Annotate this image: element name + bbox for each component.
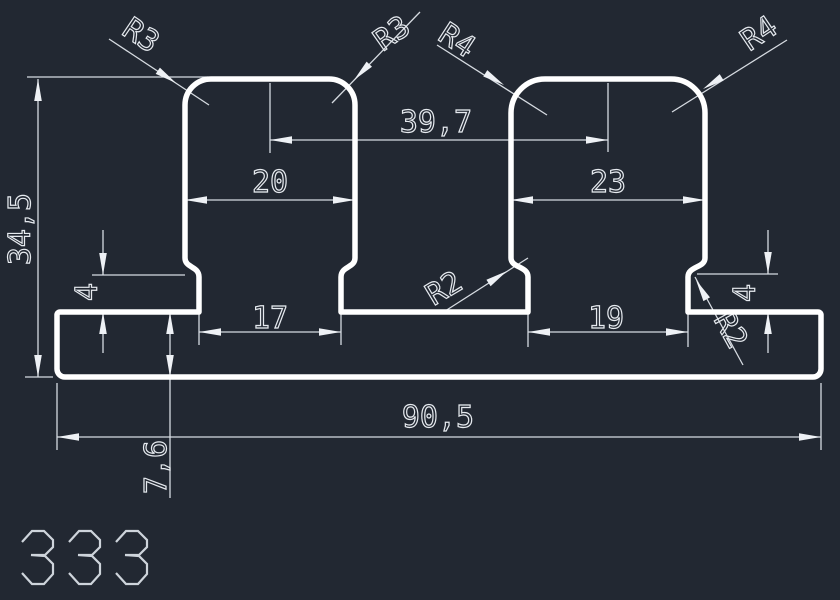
arrowhead bbox=[666, 328, 688, 336]
radius-label-r4-right: R4 bbox=[734, 9, 784, 58]
arrowhead bbox=[528, 328, 550, 336]
dim-base-height: 7,6 bbox=[139, 312, 174, 498]
radius-label-r3-right: R3 bbox=[367, 9, 417, 58]
leader-r2-center: R2 bbox=[420, 258, 528, 313]
part-number bbox=[22, 531, 147, 584]
arrowhead bbox=[99, 312, 107, 334]
arrowhead bbox=[764, 252, 772, 274]
cad-drawing-canvas[interactable]: 34,5 39,7 20 23 17 19 bbox=[0, 0, 840, 600]
digit-3 bbox=[116, 531, 147, 584]
leader-r3-left: R3 bbox=[109, 11, 209, 105]
dim-text-left-neck-width: 17 bbox=[252, 301, 288, 336]
digit-3 bbox=[69, 531, 100, 584]
dim-text-right-neck-width: 19 bbox=[588, 301, 624, 336]
dim-text-total-height: 34,5 bbox=[3, 193, 38, 265]
arrowhead bbox=[333, 196, 355, 204]
dim-text-base-height: 7,6 bbox=[139, 440, 174, 494]
dim-right-tower-width: 23 bbox=[511, 165, 705, 204]
dim-right-neck-width: 19 bbox=[528, 301, 688, 347]
dim-text-right-step: 4 bbox=[728, 284, 763, 302]
radius-label-r4-left: R4 bbox=[432, 16, 481, 65]
dim-text-tower-spacing: 39,7 bbox=[400, 105, 472, 140]
arrowhead bbox=[34, 79, 42, 101]
dim-text-left-step: 4 bbox=[70, 283, 105, 301]
arrowhead bbox=[57, 433, 79, 441]
arrowhead bbox=[34, 355, 42, 377]
arrowhead bbox=[166, 355, 174, 377]
arrowhead bbox=[354, 62, 372, 80]
arrowhead bbox=[696, 280, 710, 301]
arrowhead bbox=[166, 312, 174, 334]
arrowhead bbox=[486, 271, 507, 286]
dim-text-left-tower-width: 20 bbox=[252, 165, 288, 200]
digit-3 bbox=[22, 531, 53, 584]
dim-left-neck-width: 17 bbox=[199, 301, 341, 345]
arrowhead bbox=[511, 196, 533, 204]
dim-text-base-width: 90,5 bbox=[402, 400, 474, 435]
arrowhead bbox=[270, 136, 292, 144]
leader-r4-left: R4 bbox=[432, 16, 547, 115]
technical-drawing: 34,5 39,7 20 23 17 19 bbox=[0, 0, 840, 600]
leader-line bbox=[672, 40, 787, 112]
arrowhead bbox=[764, 312, 772, 334]
leader-r4-right: R4 bbox=[672, 9, 787, 112]
arrowhead bbox=[799, 433, 821, 441]
arrowhead bbox=[99, 253, 107, 275]
dim-text-right-tower-width: 23 bbox=[590, 165, 626, 200]
arrowhead bbox=[586, 136, 608, 144]
arrowhead bbox=[319, 328, 341, 336]
dim-left-tower-width: 20 bbox=[185, 165, 355, 204]
radius-label-r3-left: R3 bbox=[116, 11, 166, 60]
leader-r3-right: R3 bbox=[332, 9, 420, 103]
arrowhead bbox=[199, 328, 221, 336]
arrowhead bbox=[483, 70, 504, 85]
dim-left-step-height: 4 bbox=[70, 230, 185, 353]
radius-label-r2-center: R2 bbox=[420, 264, 469, 313]
arrowhead bbox=[156, 68, 176, 83]
arrowhead bbox=[683, 196, 705, 204]
arrowhead bbox=[185, 196, 207, 204]
dim-tower-spacing: 39,7 bbox=[270, 83, 608, 153]
